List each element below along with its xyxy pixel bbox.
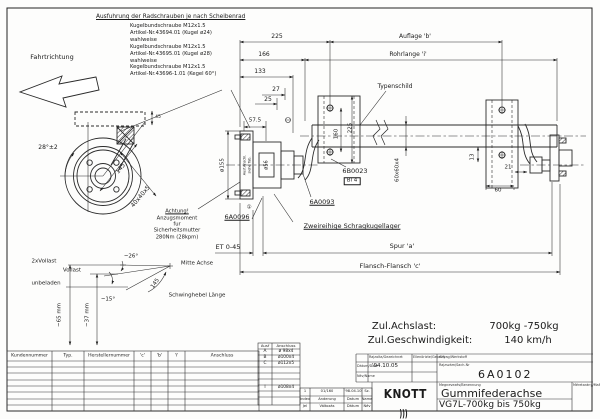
- radschrauben-note-title: Ausfuhrung der Radschrauben je nach Sche…: [96, 14, 245, 20]
- geschw-value: 140 km/h: [504, 336, 552, 346]
- callout-6a0096: 6A0096: [224, 214, 249, 221]
- note-line: Artikel-Nr.43695.01 (Kugel ø28): [130, 51, 216, 58]
- customer-table-header-1: Typ.: [63, 354, 72, 359]
- fahrtrichtung-label: Fahrtrichtung: [30, 54, 74, 61]
- dim-dia155: ø155: [220, 158, 226, 172]
- achslast-value: 700kg -750kg: [489, 322, 558, 332]
- dim-225-vert: 225: [348, 123, 354, 134]
- gezeichnet-label: Rajzolta/Gezeichnet: [369, 356, 403, 359]
- dim-dia56: ø56: [265, 160, 270, 169]
- customer-table-header-0: Kundennummer: [11, 354, 48, 359]
- warning-line-4: Sicherheitsmutter: [154, 228, 201, 233]
- dim-45: 45: [155, 116, 161, 121]
- ausf-table-cell-6-0: I: [264, 386, 265, 390]
- dim-225-top: 225: [271, 34, 282, 40]
- knott-logo-mark: ))): [399, 407, 407, 419]
- dim-21: 21: [505, 165, 512, 171]
- spur-label: Spur 'a': [390, 243, 415, 250]
- ausf-table-header-0: Ausf: [261, 344, 269, 348]
- warning-line-1: Achtung!: [165, 209, 189, 214]
- dim-37mm: ~37 mm: [85, 303, 91, 327]
- mitte-achse-label: Mitte Achse: [181, 261, 213, 267]
- dim-166: 166: [258, 52, 269, 58]
- dim-160-vert: 160: [334, 129, 340, 140]
- revision-cell-1-3: Name: [362, 398, 373, 402]
- ausf-table-cell-1-1: ø100x4: [278, 356, 294, 360]
- customer-table-header-5: 'i': [175, 354, 179, 359]
- knott-logo: KNOTT))) Bremsen Achsen KNOTT GmbH D 831…: [374, 383, 436, 419]
- revision-cell-0-3: Sz.: [364, 390, 369, 394]
- dim-65mm: ~65 mm: [57, 303, 63, 327]
- ausf-table-cell-2-1: ø112x5: [278, 362, 294, 366]
- note-line: wahlweise: [130, 58, 216, 65]
- load-unbeladen: unbeladen: [31, 281, 60, 287]
- revision-cell-2-3: Név: [363, 405, 370, 409]
- load-2xvollast: 2xVollast: [32, 259, 57, 265]
- part-subtitle: VG7L-700kg bis 750kg: [439, 401, 541, 410]
- customer-table-header-2: Herstellernummer: [88, 354, 130, 359]
- ausf-anschl-note: Ausf.Anschl.: [243, 155, 246, 176]
- revision-cell-2-1: Változás: [320, 405, 335, 409]
- ausf-table-cell-6-1: ø108x4: [278, 386, 294, 390]
- customer-table-header-6: Anschluss: [211, 354, 234, 359]
- et-label: ET 0-45: [216, 244, 241, 251]
- sachnr-label: Rajzszám/Sach-Nr: [439, 364, 470, 367]
- datum-value: '94.10.05: [372, 364, 398, 370]
- revision-cell-2-2: Dátum: [347, 405, 359, 409]
- siehe-tab-note: siehe Tab.: [248, 157, 251, 174]
- revision-cell-1-1: Anderung: [318, 398, 336, 402]
- note-line: Kugelbundschraube M12x1.5: [130, 44, 216, 51]
- note-line: wahlweise: [130, 37, 216, 44]
- note-line: Kugelbundschraube M12x1.5: [130, 23, 216, 30]
- drawing-number: 6A0102: [478, 369, 533, 380]
- revision-cell-0-1: 01/160: [321, 390, 334, 394]
- load-vollast: Vollast: [63, 268, 81, 274]
- ref-circle-1: ①: [247, 205, 252, 211]
- ausf-table-cell-0-1: ø 98x4: [279, 350, 294, 354]
- engineering-drawing-sheet: Ausfuhrung der Radschrauben je nach Sche…: [0, 0, 600, 419]
- auflage-b-label: Auflage 'b': [399, 34, 431, 40]
- ausf-table-cell-0-0: A: [264, 350, 267, 354]
- dim-57-5: 57.5: [249, 118, 261, 124]
- knott-logo-text: KNOTT: [383, 386, 426, 401]
- schwinghebel-label: Schwinghebel Länge: [169, 293, 226, 299]
- rohrlange-label: Rohrlange 'i': [389, 52, 426, 58]
- flansch-label: Flansch-Flansch 'c': [359, 263, 420, 270]
- typenschild-label: Typenschild: [378, 84, 413, 90]
- note-line: Artikel-Nr.43696-1.01 (Kegel 60°): [130, 71, 216, 78]
- revision-cell-2-0: Jel: [303, 405, 307, 409]
- massstab-label: Méretarány/Maßstab: [573, 384, 592, 388]
- angle-15: ~15°: [101, 297, 115, 303]
- achslast-label: Zul.Achslast:: [372, 322, 436, 332]
- radschrauben-note-lines: Kugelbundschraube M12x1.5 Artikel-Nr.436…: [130, 23, 216, 78]
- dim-60: 60: [495, 188, 502, 194]
- dim-25: 25: [264, 97, 272, 103]
- revision-cell-0-0: 1: [304, 390, 306, 394]
- revision-cell-0-2: '98.04.10: [345, 390, 362, 394]
- callout-6a0093: 6A0093: [309, 199, 334, 206]
- ausf-table-cell-1-0: B: [264, 356, 267, 360]
- revision-cell-1-0: Index: [300, 398, 310, 402]
- dim-133: 133: [254, 69, 265, 75]
- tube-profile-label: 60x60x4: [395, 158, 401, 182]
- ausf-table-header-1: Anschluss: [277, 344, 296, 348]
- callout-bl4: Bl 4: [344, 177, 361, 185]
- note-line: Artikel-Nr.43694.01 (Kugel ø24): [130, 30, 216, 37]
- callout-6b0023: 6B0023: [342, 168, 367, 175]
- revision-cell-1-2: Datum: [347, 398, 359, 402]
- customer-table-header-3: 'c': [140, 354, 145, 359]
- part-title: Gummifederachse: [441, 388, 542, 399]
- ausf-table-cell-2-0: C: [263, 362, 266, 366]
- dim-angle-28: 28°±2: [38, 145, 57, 151]
- dim-27: 27: [272, 87, 280, 93]
- name-label: Név/Name: [357, 375, 375, 378]
- note-line: Kegelbundschraube M12x1.5: [130, 64, 216, 71]
- warning-line-5: 280Nm (28kpm): [156, 235, 198, 240]
- geschw-label: Zul.Geschwindigkeit:: [368, 336, 473, 346]
- angle-26: ~26°: [124, 254, 138, 260]
- radschrauben-note: Ausfuhrung der Radschrauben je nach Sche…: [96, 14, 245, 20]
- dim-13: 13: [470, 154, 476, 161]
- customer-table-header-4: 'b': [157, 354, 162, 359]
- lager-label: Zweireihige Schragkugellager: [304, 223, 401, 230]
- werkstoff-label: Anyag/Werkstoff: [439, 356, 467, 359]
